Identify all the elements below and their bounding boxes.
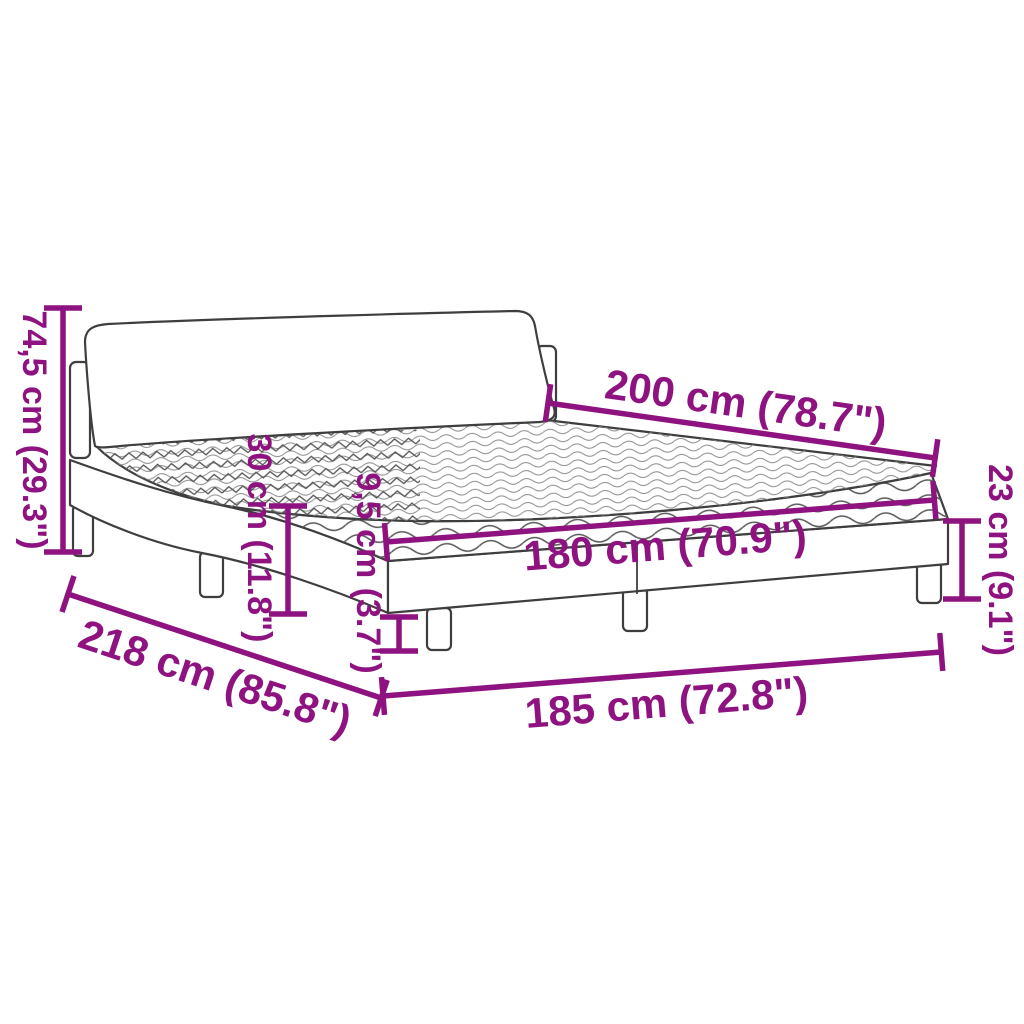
- dimension-label-frame-height: 23 cm (9.1"): [981, 464, 1019, 656]
- product-dimension-diagram: 74,5 cm (29.3") 200 cm (78.7") 23 cm (9.…: [0, 0, 1024, 1024]
- dimension-frame-height: 23 cm (9.1"): [943, 464, 1019, 656]
- bed-leg-mid-left: [200, 552, 223, 597]
- dimension-label-total-height: 74,5 cm (29.3"): [15, 310, 53, 549]
- dimension-total-length: 218 cm (85.8"): [50, 576, 387, 751]
- bed-illustration: [70, 311, 950, 650]
- dimension-tick: [382, 677, 385, 715]
- dimension-tick: [933, 481, 936, 519]
- dimension-tick: [932, 439, 937, 477]
- dimension-label-rail-height: 9,5 cm (3.7"): [349, 472, 387, 673]
- bed-leg-front-middle: [623, 588, 647, 631]
- dimension-label-frame-width: 185 cm (72.8"): [523, 668, 810, 737]
- dimension-label-side-height: 30 cm (11.8"): [240, 434, 278, 643]
- dimension-tick: [940, 633, 943, 671]
- dimension-tick: [385, 523, 388, 561]
- dimension-frame-width: 185 cm (72.8"): [382, 633, 946, 748]
- bed-leg-front-left: [427, 608, 451, 650]
- dimension-diagram-svg: 74,5 cm (29.3") 200 cm (78.7") 23 cm (9.…: [0, 0, 1024, 1024]
